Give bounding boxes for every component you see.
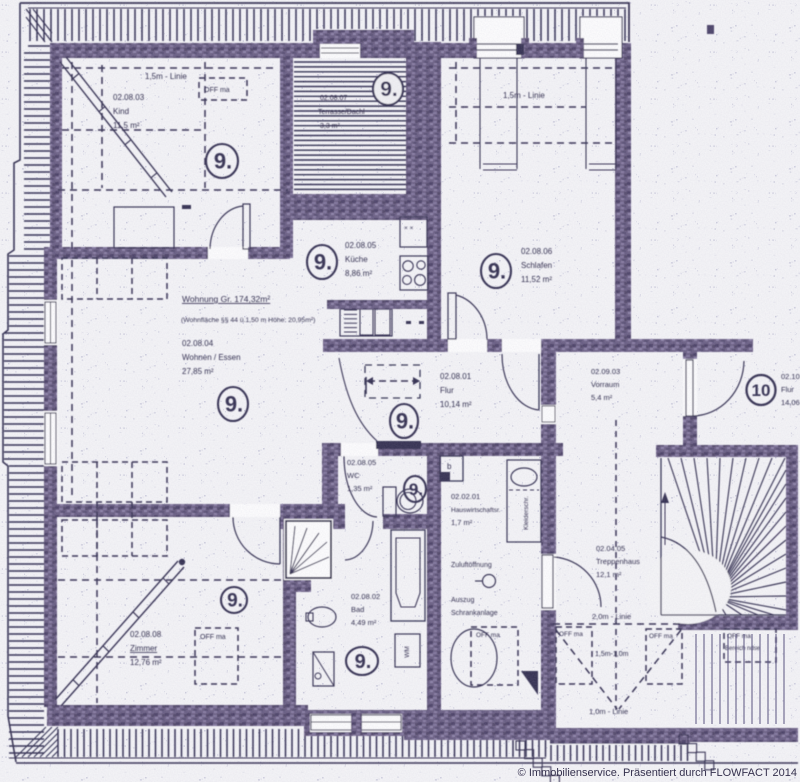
svg-text:© Immobilienservice. Präsentie: © Immobilienservice. Präsentiert durch F… [518, 767, 797, 779]
